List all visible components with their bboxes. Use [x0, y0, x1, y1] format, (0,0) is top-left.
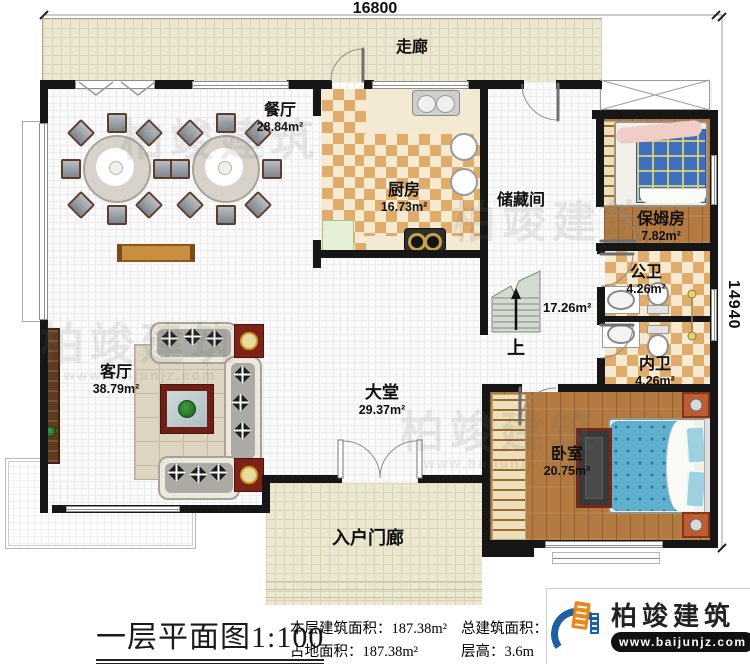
towel-rail: [688, 290, 696, 340]
plan-linework: [0, 0, 750, 664]
label-public-bath: 公卫 4.26m²: [626, 258, 666, 296]
brand-logo-icon: [550, 599, 606, 655]
label-stair-up: 上: [507, 334, 525, 360]
door-leaves: [363, 49, 635, 424]
label-dining: 餐厅 28.84m²: [257, 96, 304, 134]
brand-name: 柏竣建筑: [611, 603, 750, 629]
label-stair-hall-area: 17.26m²: [543, 300, 591, 315]
stat-land-area: 占地面积：187.38m²: [290, 640, 447, 661]
dimension-lines: [44, 15, 722, 548]
stat-floor-area: 本层建筑面积：187.38m²: [290, 617, 447, 638]
label-lobby: 大堂 29.37m²: [359, 378, 406, 417]
floor-plan-canvas: 16800 14940 走廊 餐厅 28.84m² 厨房 16.73m² 储藏间…: [0, 0, 750, 664]
plan-title-text: 一层平面图: [96, 621, 251, 654]
label-nanny: 保姆房 7.82m²: [637, 205, 685, 243]
label-corridor: 走廊: [396, 33, 428, 57]
label-living: 客厅 38.79m²: [93, 358, 140, 396]
logo-building2-icon: [590, 613, 599, 634]
label-private-bath: 内卫 4.26m²: [635, 350, 675, 388]
brand-url: www.baijunjz.com: [611, 632, 750, 652]
dim-height-label: 14940: [724, 280, 742, 330]
label-kitchen: 厨房 16.73m²: [381, 176, 428, 214]
brand-logo: 柏竣建筑 www.baijunjz.com: [546, 588, 750, 664]
brand-text-block: 柏竣建筑 www.baijunjz.com: [611, 603, 750, 652]
staircase: [492, 271, 540, 332]
open-above-x: [600, 80, 710, 110]
label-bedroom: 卧室 20.75m²: [544, 440, 591, 478]
label-porch: 入户门廊: [332, 524, 404, 550]
label-storage: 储藏间: [497, 186, 545, 210]
casement-window-icon: [79, 82, 155, 95]
dim-width-label: 16800: [353, 0, 398, 18]
